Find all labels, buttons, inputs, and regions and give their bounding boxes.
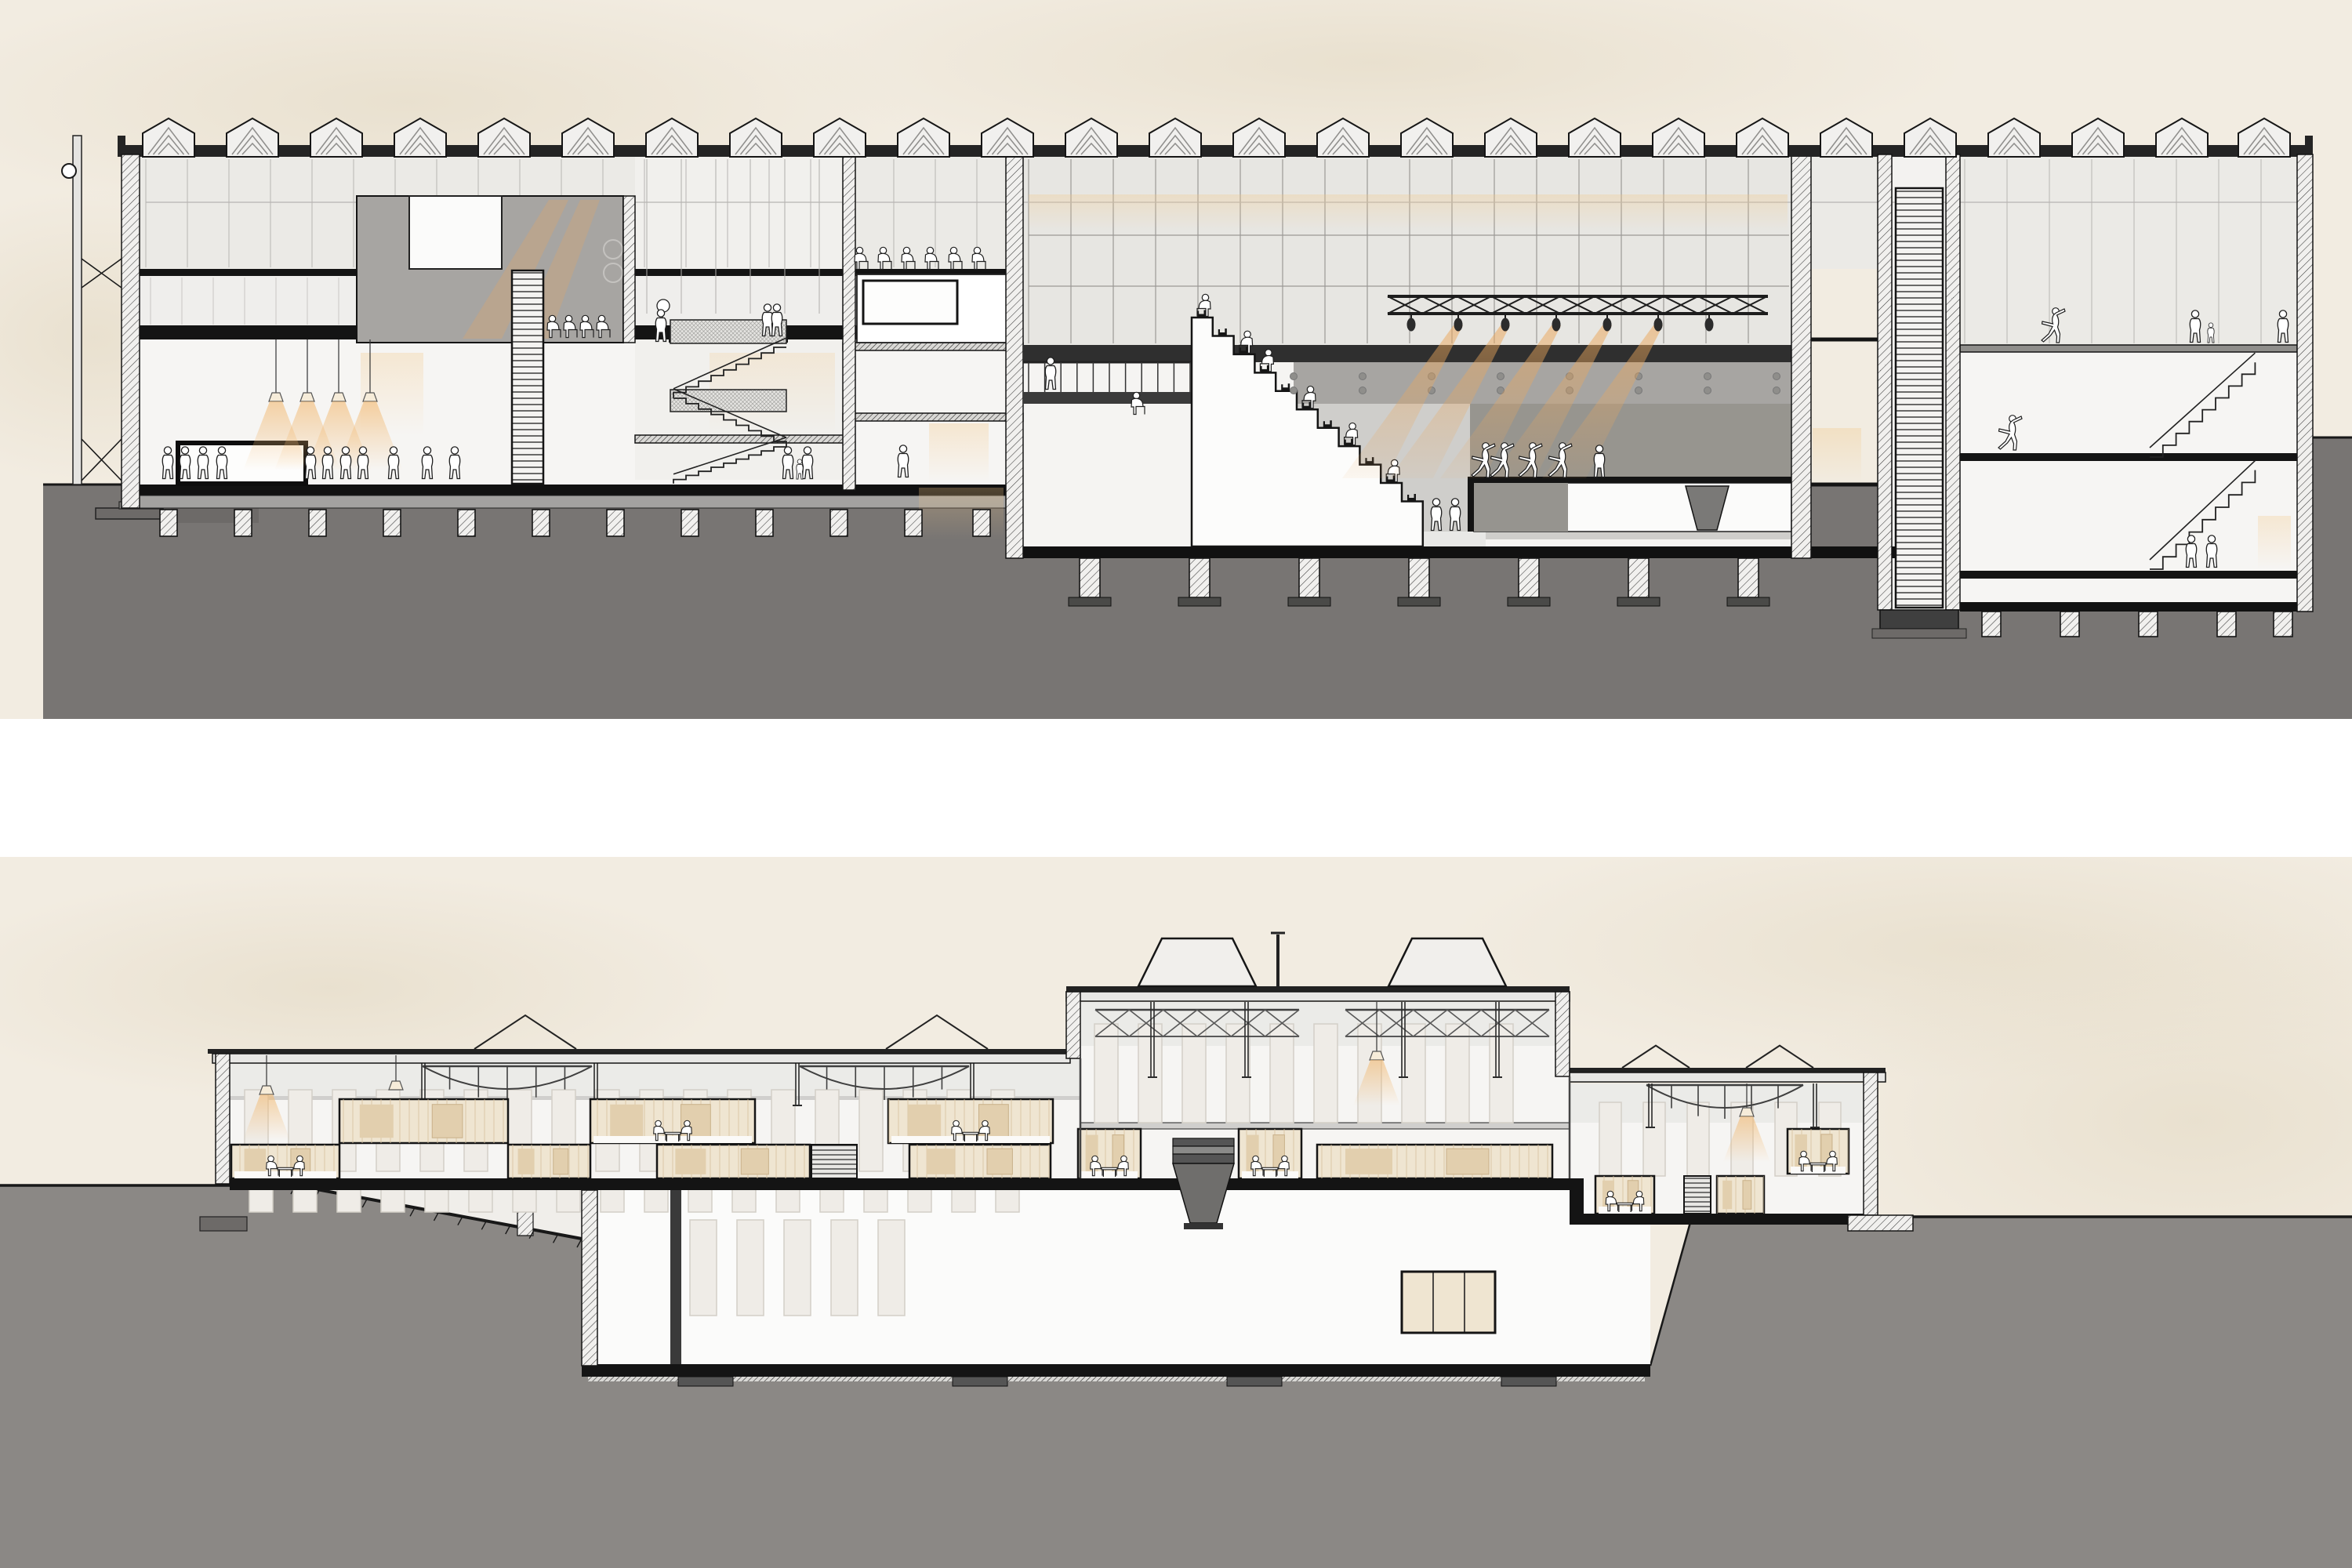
wall-door-panel — [690, 1220, 717, 1316]
footing-pad — [1227, 1377, 1282, 1386]
pod-panel — [1446, 1149, 1489, 1174]
foundation-pier — [1738, 558, 1759, 597]
warm-light-wash — [1813, 428, 1861, 483]
wall-door-panel — [1182, 1024, 1206, 1123]
wall-door-panel — [1138, 1024, 1162, 1123]
stair-core — [1684, 1176, 1711, 1214]
pod-panel — [245, 1149, 267, 1174]
foundation-pier — [681, 510, 699, 536]
acoustic-panel-hole — [1704, 387, 1711, 394]
acoustic-panel-hole — [1635, 387, 1642, 394]
pod-floor — [1791, 1167, 1846, 1174]
acoustic-panel-hole — [1359, 387, 1367, 394]
pod-panel — [554, 1149, 568, 1174]
foundation-pier — [160, 510, 177, 536]
pod-panel — [360, 1105, 394, 1138]
pod-floor — [593, 1136, 752, 1143]
pier-pad — [1069, 597, 1111, 606]
wall-door-panel — [859, 1090, 883, 1171]
foundation-pier — [830, 510, 848, 536]
pier-pad — [1508, 597, 1550, 606]
wall-door-panel — [1599, 1102, 1621, 1176]
foundation-pier — [383, 510, 401, 536]
foundation-pier — [973, 510, 990, 536]
spotlight — [1552, 318, 1561, 332]
wall-door-panel — [1446, 1024, 1469, 1123]
spotlight — [1454, 318, 1463, 332]
acoustic-panel-hole — [1497, 373, 1504, 380]
pod-floor — [1081, 1171, 1138, 1178]
foundation-pier — [458, 510, 475, 536]
foundation-pier — [2274, 612, 2292, 637]
pod-panel — [1743, 1181, 1751, 1209]
foundation-pier — [1299, 558, 1319, 597]
foundation-pier — [2217, 612, 2236, 637]
white-divider-band — [0, 719, 2352, 857]
pier-pad — [1617, 597, 1660, 606]
warm-light-wash — [919, 488, 1004, 539]
foundation-pier — [2139, 612, 2158, 637]
pod-floor — [891, 1136, 1050, 1143]
pier-pad — [1288, 597, 1330, 606]
pod-panel — [518, 1149, 535, 1174]
foundation-pier — [607, 510, 624, 536]
acoustic-panel-hole — [1290, 373, 1298, 380]
pod-panel — [1345, 1149, 1392, 1174]
acoustic-panel-hole — [1773, 387, 1780, 394]
pod-floor — [1242, 1171, 1298, 1178]
acoustic-panel-hole — [1290, 387, 1298, 394]
pod-panel — [610, 1105, 643, 1138]
spotlight — [1654, 318, 1663, 332]
acoustic-panel-hole — [1773, 373, 1780, 380]
pod-panel — [927, 1149, 955, 1174]
warm-light-wash — [929, 423, 989, 481]
pod-panel — [675, 1149, 706, 1174]
wall-door-panel — [1314, 1024, 1338, 1123]
spotlight — [1407, 318, 1416, 332]
pod-panel — [987, 1149, 1012, 1174]
wall-door-panel — [1643, 1102, 1665, 1176]
foundation-pier — [1628, 558, 1649, 597]
pod-panel — [908, 1105, 941, 1138]
acoustic-panel-hole — [1359, 373, 1367, 380]
wall-door-panel — [878, 1220, 905, 1316]
acoustic-panel-hole — [1704, 373, 1711, 380]
stair-core — [811, 1145, 857, 1178]
pod-panel — [432, 1105, 463, 1138]
pod-panel — [1722, 1181, 1732, 1209]
wall-door-panel — [1270, 1024, 1294, 1123]
warm-light-wash — [1029, 194, 1788, 230]
pod-floor — [234, 1171, 336, 1178]
wall-door-panel — [784, 1220, 811, 1316]
footing-pad — [1501, 1377, 1556, 1386]
foundation-pier — [905, 510, 922, 536]
foundation-pier — [1982, 612, 2001, 637]
wall-door-panel — [1094, 1024, 1118, 1123]
footing-pad — [953, 1377, 1007, 1386]
footing-pad — [678, 1377, 733, 1386]
drawing-sheet — [0, 0, 2352, 1568]
spotlight — [1501, 318, 1510, 332]
foundation-pier — [234, 510, 252, 536]
foundation-pier — [756, 510, 773, 536]
pier-pad — [1727, 597, 1769, 606]
pier-pad — [1398, 597, 1440, 606]
foundation-pier — [1080, 558, 1100, 597]
foundation-pier — [532, 510, 550, 536]
pod-panel — [741, 1149, 768, 1174]
wall-door-panel — [1490, 1024, 1513, 1123]
pod-floor — [1599, 1207, 1651, 1214]
foundation-pier — [1189, 558, 1210, 597]
spotlight — [1705, 318, 1714, 332]
wall-door-panel — [1226, 1024, 1250, 1123]
wall-door-panel — [737, 1220, 764, 1316]
pier-pad — [1178, 597, 1221, 606]
warm-light-wash — [2258, 516, 2291, 569]
architectural-sections-canvas — [0, 0, 2352, 1568]
spotlight — [1603, 318, 1612, 332]
foundation-pier — [309, 510, 326, 536]
foundation-pier — [1409, 558, 1429, 597]
foundation-pier — [2060, 612, 2079, 637]
wall-door-panel — [831, 1220, 858, 1316]
foundation-pier — [1519, 558, 1539, 597]
